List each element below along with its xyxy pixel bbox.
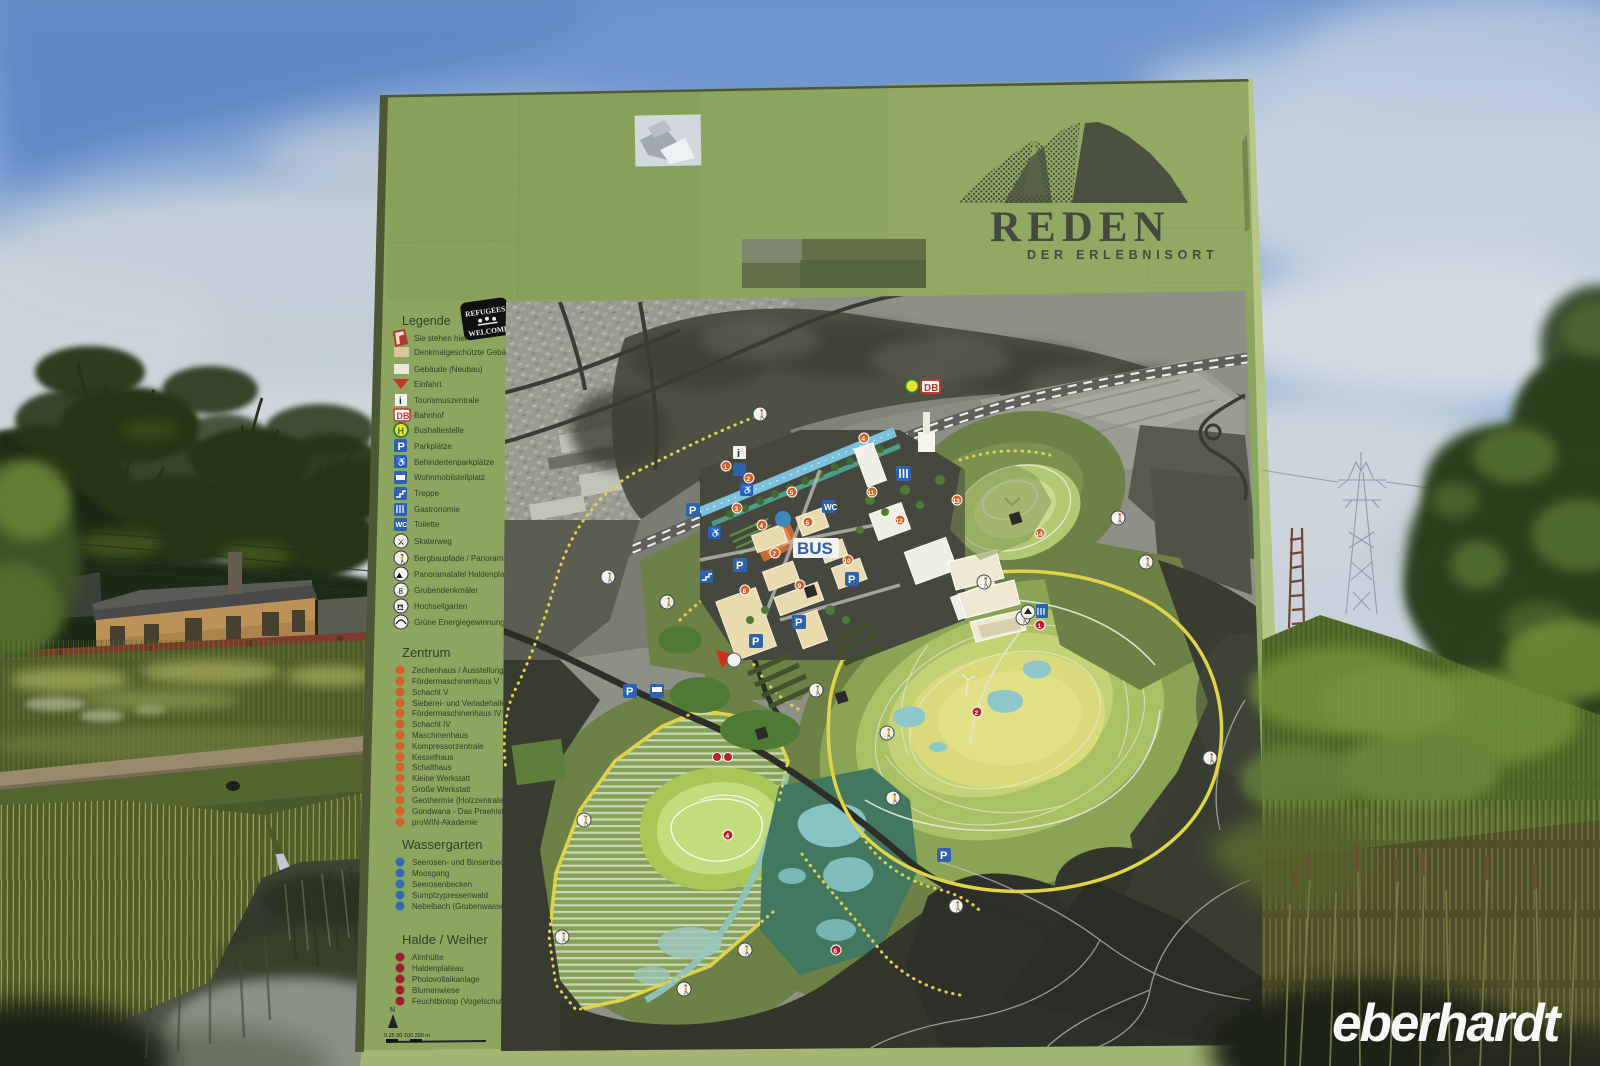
svg-text:Wassergarten: Wassergarten [402,837,482,852]
svg-text:Moosgang: Moosgang [412,869,449,878]
svg-text:3: 3 [735,506,739,513]
svg-text:Zechenhaus / Ausstellungen: Zechenhaus / Ausstellungen [412,666,513,675]
svg-text:Hochseilgarten: Hochseilgarten [414,602,467,611]
svg-text:Kleine Werkstatt: Kleine Werkstatt [412,774,471,783]
svg-text:Große Werkstatt: Große Werkstatt [412,785,471,794]
svg-text:Seerosenbecken: Seerosenbecken [412,880,472,889]
svg-text:P: P [398,441,405,453]
svg-text:🚶: 🚶 [757,409,768,420]
svg-text:Geothermie (Holzzentrale): Geothermie (Holzzentrale) [412,796,506,805]
svg-text:Denkmalgeschützte Gebäude: Denkmalgeschützte Gebäude [414,348,520,357]
svg-text:2: 2 [747,476,751,483]
svg-text:DB: DB [924,383,938,394]
svg-text:1: 1 [1038,623,1042,630]
svg-text:11: 11 [868,490,875,497]
svg-text:REDEN: REDEN [990,204,1171,251]
svg-text:DER ERLEBNISORT: DER ERLEBNISORT [1027,248,1218,262]
svg-text:Panoramatafel Haldenplateau: Panoramatafel Haldenplateau [414,570,520,579]
svg-text:Halde / Weiher: Halde / Weiher [402,932,488,947]
svg-text:P: P [736,560,743,572]
svg-text:Haldenplateau: Haldenplateau [412,964,464,973]
svg-text:🚶: 🚶 [1207,753,1218,764]
svg-text:Gebäude (Neubau): Gebäude (Neubau) [414,365,483,374]
svg-text:♿: ♿ [396,456,407,467]
svg-text:Gastronomie: Gastronomie [414,505,460,514]
svg-text:🚶: 🚶 [890,793,901,804]
svg-text:Behindertenparkplätze: Behindertenparkplätze [414,458,495,467]
svg-text:10: 10 [844,558,852,565]
svg-text:Sumpfzypressenwald: Sumpfzypressenwald [412,891,488,900]
svg-text:Bushaltestelle: Bushaltestelle [414,426,464,435]
svg-text:🚶: 🚶 [1115,513,1126,524]
svg-text:Skaterweg: Skaterweg [414,537,452,546]
svg-text:Seerosen- und Binsenbecken: Seerosen- und Binsenbecken [412,858,517,867]
svg-text:🚶: 🚶 [681,984,692,995]
svg-text:🚶: 🚶 [605,572,616,583]
svg-text:P: P [848,574,855,586]
svg-text:i: i [737,448,740,460]
svg-text:🚶: 🚶 [1143,557,1154,568]
svg-text:6: 6 [806,520,810,527]
svg-text:🚶: 🚶 [742,945,753,956]
svg-text:🚶: 🚶 [884,728,895,739]
svg-text:DB: DB [397,411,410,421]
svg-text:🚶: 🚶 [581,815,592,826]
svg-text:8: 8 [743,588,747,595]
svg-text:🚶: 🚶 [953,901,964,912]
svg-text:proWIN-Akademie: proWIN-Akademie [412,818,478,827]
svg-text:9: 9 [798,583,802,590]
svg-text:Maschinenhaus: Maschinenhaus [412,731,468,740]
svg-text:7: 7 [773,551,777,558]
svg-text:Sie stehen hier: Sie stehen hier [414,334,468,343]
svg-text:⛾: ⛾ [397,603,404,612]
svg-text:4: 4 [760,523,764,530]
svg-text:Kompressorzentrale: Kompressorzentrale [412,742,484,751]
svg-text:13: 13 [953,498,961,505]
svg-text:Tourismuszentrale: Tourismuszentrale [414,396,479,405]
svg-text:Kesselhaus: Kesselhaus [412,753,453,762]
svg-text:i: i [399,396,402,407]
svg-text:Grüne Energiegewinnung: Grüne Energiegewinnung [414,618,505,627]
svg-text:⛰: ⛰ [396,571,403,580]
svg-text:P: P [795,617,802,629]
svg-text:Wohnmobilstellplatz: Wohnmobilstellplatz [414,473,485,482]
svg-text:🚶: 🚶 [559,932,570,943]
svg-text:0 25 50 100: 0 25 50 100 200 m [384,1033,430,1039]
svg-text:🚶: 🚶 [981,577,992,588]
svg-text:Zentrum: Zentrum [402,645,450,660]
svg-text:N: N [390,1007,395,1014]
svg-text:Nebelbach (Grubenwasser): Nebelbach (Grubenwasser) [412,902,510,911]
svg-text:Schacht IV: Schacht IV [412,720,451,729]
svg-text:4: 4 [726,833,730,840]
svg-text:eberhardt: eberhardt [1332,994,1563,1053]
svg-text:♿: ♿ [710,527,721,538]
svg-text:Fördermaschinenhaus V: Fördermaschinenhaus V [412,677,500,686]
svg-text:Einfahrt: Einfahrt [414,380,442,389]
svg-text:1: 1 [724,464,728,471]
svg-text:Sieberei- und Verladehalle: Sieberei- und Verladehalle [412,699,506,708]
svg-text:Fördermaschinenhaus IV: Fördermaschinenhaus IV [412,709,502,718]
svg-text:Bahnhof: Bahnhof [414,411,445,420]
svg-text:WC: WC [824,503,838,512]
svg-text:P: P [752,636,759,648]
svg-text:5: 5 [790,490,794,497]
svg-text:4: 4 [862,436,866,443]
svg-text:12: 12 [896,518,904,525]
svg-text:P: P [626,686,633,698]
svg-text:P: P [940,850,947,862]
svg-text:Legende: Legende [402,314,451,328]
svg-text:2: 2 [975,710,979,717]
svg-text:Toilette: Toilette [414,520,440,529]
svg-text:14: 14 [1036,531,1044,538]
svg-text:Almhütte: Almhütte [412,953,444,962]
svg-text:Schalthaus: Schalthaus [412,763,452,772]
svg-text:🚶: 🚶 [397,553,408,564]
svg-text:Grubendenkmäler: Grubendenkmäler [414,586,478,595]
svg-text:Parkplätze: Parkplätze [414,442,452,451]
svg-text:6: 6 [834,948,838,955]
svg-text:WC: WC [396,522,408,529]
svg-text:P: P [689,505,696,517]
svg-text:Blumenwiese: Blumenwiese [412,986,460,995]
svg-text:H: H [398,426,405,436]
svg-text:BUS: BUS [797,539,833,558]
svg-text:🚶: 🚶 [664,597,675,608]
svg-text:🚶: 🚶 [813,685,824,696]
svg-text:8: 8 [399,587,404,596]
svg-text:Photovoltaikanlage: Photovoltaikanlage [412,975,480,984]
svg-text:♿: ♿ [742,484,753,495]
svg-text:Treppe: Treppe [414,489,440,498]
svg-text:⚔: ⚔ [397,537,405,547]
svg-text:Schacht V: Schacht V [412,688,449,697]
